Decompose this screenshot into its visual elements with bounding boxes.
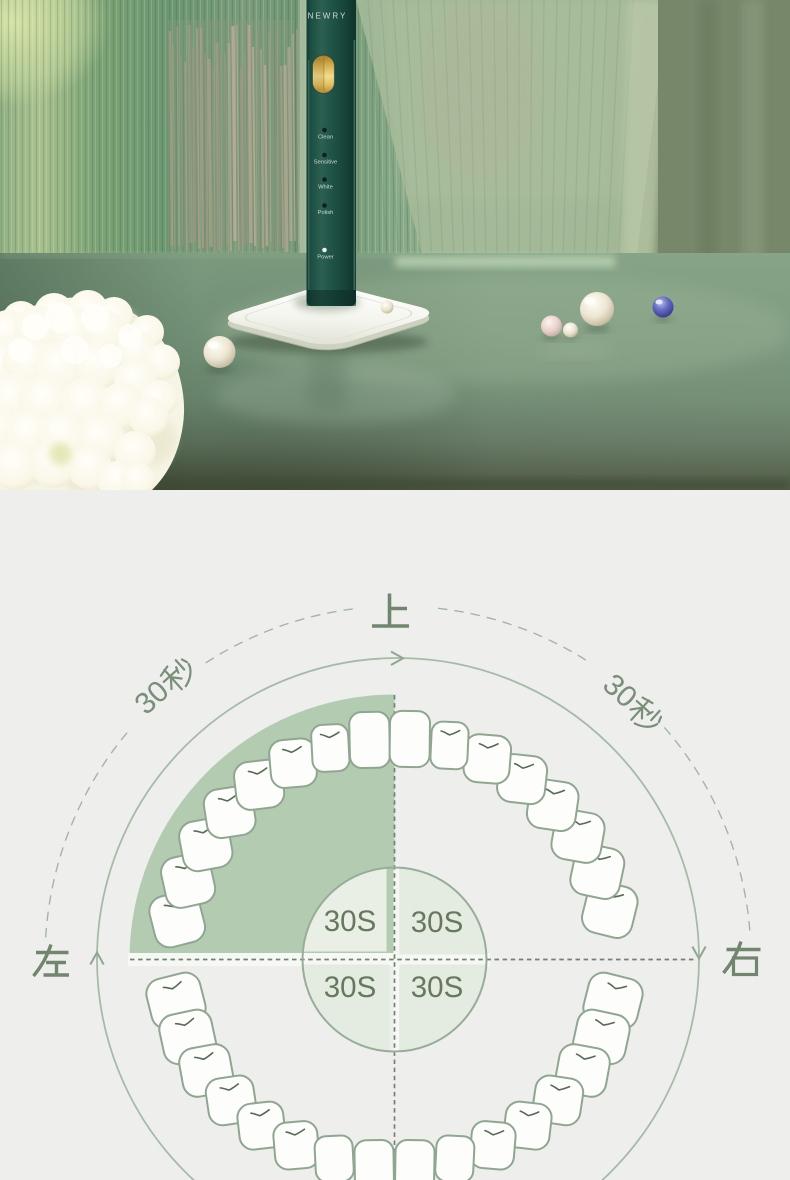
svg-text:White: White: [318, 185, 333, 191]
svg-text:Clean: Clean: [318, 135, 333, 141]
svg-text:30S: 30S: [324, 905, 377, 938]
svg-text:NEWRY: NEWRY: [308, 12, 348, 21]
svg-text:30S: 30S: [411, 906, 464, 939]
svg-text:Power: Power: [317, 255, 334, 261]
svg-text:30S: 30S: [324, 971, 377, 1004]
svg-text:30S: 30S: [411, 971, 464, 1004]
svg-text:Sensitive: Sensitive: [314, 160, 338, 166]
svg-text:Polish: Polish: [318, 210, 334, 216]
